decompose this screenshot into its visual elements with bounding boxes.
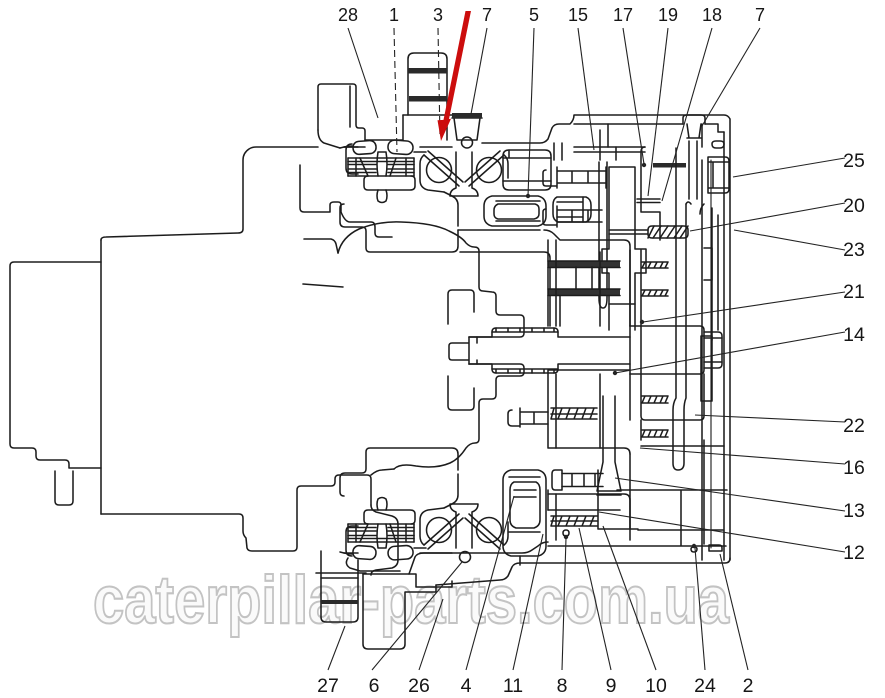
svg-text:4: 4 (461, 675, 472, 697)
svg-text:15: 15 (568, 5, 588, 25)
svg-text:17: 17 (613, 5, 633, 25)
svg-text:3: 3 (433, 5, 443, 25)
svg-text:2: 2 (743, 675, 754, 697)
svg-text:19: 19 (658, 5, 678, 25)
svg-text:10: 10 (645, 675, 667, 697)
svg-text:16: 16 (843, 457, 865, 479)
svg-text:12: 12 (843, 542, 865, 564)
svg-text:8: 8 (557, 675, 568, 697)
svg-text:9: 9 (606, 675, 617, 697)
svg-text:27: 27 (317, 675, 339, 697)
svg-text:14: 14 (843, 324, 865, 346)
svg-text:28: 28 (338, 5, 358, 25)
svg-text:25: 25 (843, 150, 865, 172)
svg-text:5: 5 (529, 5, 539, 25)
svg-text:7: 7 (755, 5, 765, 25)
svg-text:21: 21 (843, 281, 865, 303)
svg-text:13: 13 (843, 500, 865, 522)
svg-text:20: 20 (843, 195, 865, 217)
svg-text:11: 11 (503, 675, 523, 697)
svg-text:6: 6 (369, 675, 380, 697)
svg-text:22: 22 (843, 415, 865, 437)
svg-text:24: 24 (694, 675, 716, 697)
svg-text:7: 7 (482, 5, 492, 25)
svg-text:23: 23 (843, 239, 865, 261)
svg-text:1: 1 (389, 5, 399, 25)
svg-text:26: 26 (408, 675, 430, 697)
svg-text:18: 18 (702, 5, 722, 25)
